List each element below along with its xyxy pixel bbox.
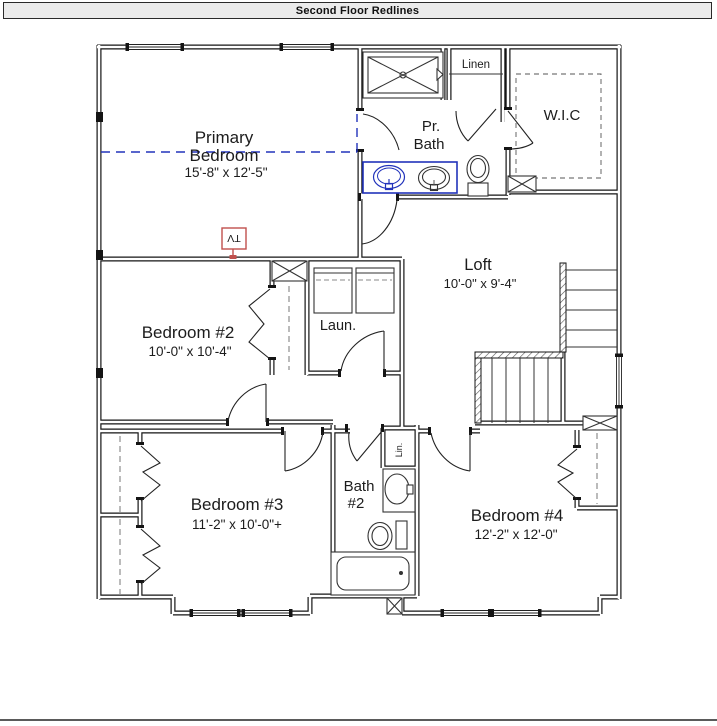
label-bedroom4: Bedroom #4 — [471, 506, 564, 525]
floor-plan-sheet: Second Floor Redlines — [0, 0, 717, 726]
door-swing-laundry — [341, 331, 384, 371]
door-swing-primary-bath — [363, 114, 399, 150]
chase-box — [508, 176, 536, 192]
bifold-door — [141, 446, 160, 501]
door-swing-bath-entry — [362, 199, 397, 244]
bifold-door — [249, 289, 270, 359]
tv-outlet-symbol: TV — [222, 228, 246, 259]
label-bath2-1: Bath — [344, 478, 375, 495]
door-swing-wic — [508, 111, 533, 149]
dims-primary-bedroom: 15'-8" x 12'-5" — [184, 165, 267, 180]
dryer — [356, 268, 394, 313]
sheet-bottom-rule — [0, 719, 717, 721]
label-bedroom3: Bedroom #3 — [191, 495, 284, 514]
dims-bedroom4: 12'-2" x 12'-0" — [474, 527, 557, 542]
chase-box — [387, 598, 402, 614]
window — [126, 43, 185, 51]
label-pr-bath-1: Pr. — [422, 118, 440, 135]
staircase — [492, 270, 617, 423]
redline-markup: TV — [101, 114, 457, 259]
label-linen: Linen — [462, 59, 490, 71]
window — [441, 609, 492, 617]
chase-box — [583, 416, 617, 430]
chase-box — [272, 261, 307, 281]
toilet — [368, 521, 407, 550]
label-primary-bedroom-2: Bedroom — [190, 146, 259, 165]
window — [242, 609, 293, 617]
bifold-door — [141, 529, 160, 584]
window — [280, 43, 335, 51]
dims-loft: 10'-0" x 9'-4" — [444, 276, 517, 291]
label-laundry: Laun. — [320, 318, 356, 334]
door-swing-bedroom4 — [431, 432, 470, 471]
label-pr-bath-2: Bath — [414, 136, 445, 153]
dims-bedroom2: 10'-0" x 10'-4" — [148, 344, 231, 359]
label-primary-bedroom-1: Primary — [195, 128, 254, 147]
label-loft: Loft — [464, 256, 492, 274]
label-lin-closet: Lin. — [394, 443, 404, 458]
bathroom-sink — [383, 469, 415, 512]
floor-plan-drawing: TV Primary Bedroom 15'-8" x 12'-5" Pr. B… — [0, 0, 717, 726]
shower — [363, 52, 443, 98]
window — [190, 609, 241, 617]
tv-label: TV — [227, 232, 240, 244]
door-swing-bath2 — [349, 431, 382, 461]
toilet — [467, 156, 489, 197]
door-swing-vestibule — [456, 109, 496, 141]
door-swing-bedroom2 — [228, 384, 266, 422]
bathtub — [331, 552, 415, 595]
window — [491, 609, 542, 617]
wic-shelving — [516, 74, 601, 178]
door-swing-bedroom3 — [285, 431, 323, 471]
vanity-sink — [419, 167, 450, 191]
label-bath2-2: #2 — [348, 495, 365, 512]
label-wic: W.I.C — [544, 107, 581, 124]
redline-vanity — [363, 162, 457, 193]
label-bedroom2: Bedroom #2 — [142, 323, 235, 342]
washer — [314, 268, 352, 313]
dims-bedroom3: 11'-2" x 10'-0"+ — [192, 517, 282, 532]
window — [615, 354, 623, 409]
